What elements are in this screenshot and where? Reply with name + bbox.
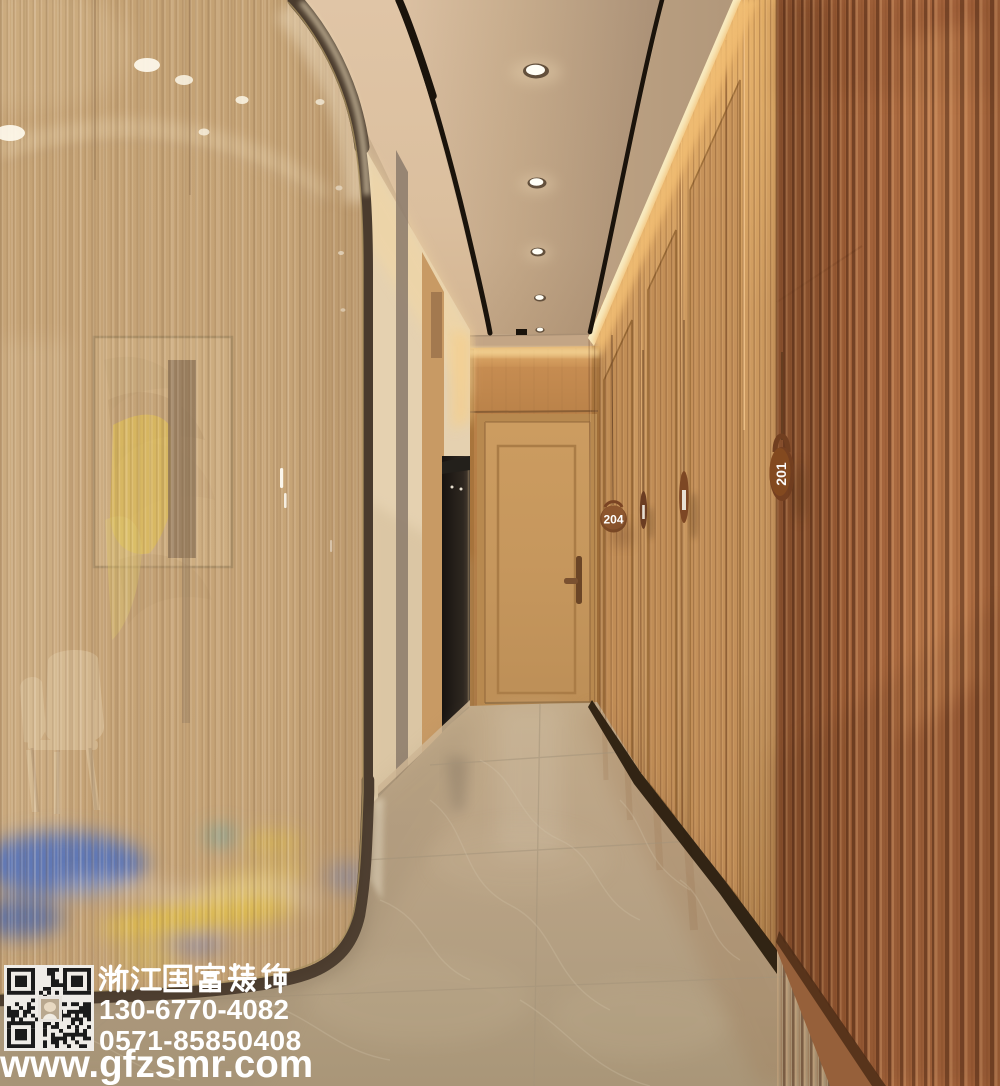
svg-text:204: 204 — [603, 513, 623, 527]
svg-text:201: 201 — [773, 462, 789, 486]
